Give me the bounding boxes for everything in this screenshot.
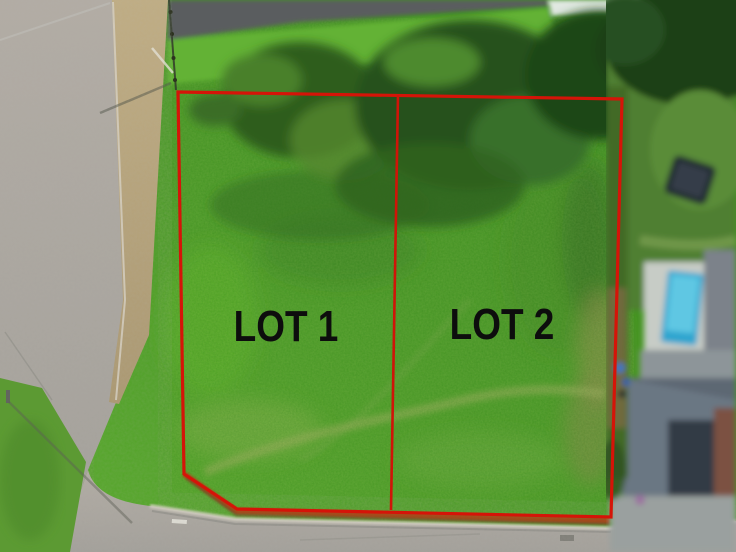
blue-object [622, 378, 630, 386]
aerial-photo [0, 0, 736, 552]
neighbor-garage-door [668, 420, 716, 502]
garden-path [640, 240, 736, 245]
neighbor-property [585, 0, 736, 552]
fence-post [172, 56, 176, 60]
dark-object [618, 390, 626, 398]
lot2-label: LOT 2 [450, 303, 555, 347]
aerial-photo-stage: LOT 1 LOT 2 [0, 0, 736, 552]
lot1-label: LOT 1 [234, 305, 339, 349]
fence-post [173, 78, 177, 82]
neighbor-driveway [610, 496, 736, 552]
purple-object [635, 495, 645, 505]
swimming-pool [661, 270, 704, 345]
utility-pole [6, 390, 10, 403]
